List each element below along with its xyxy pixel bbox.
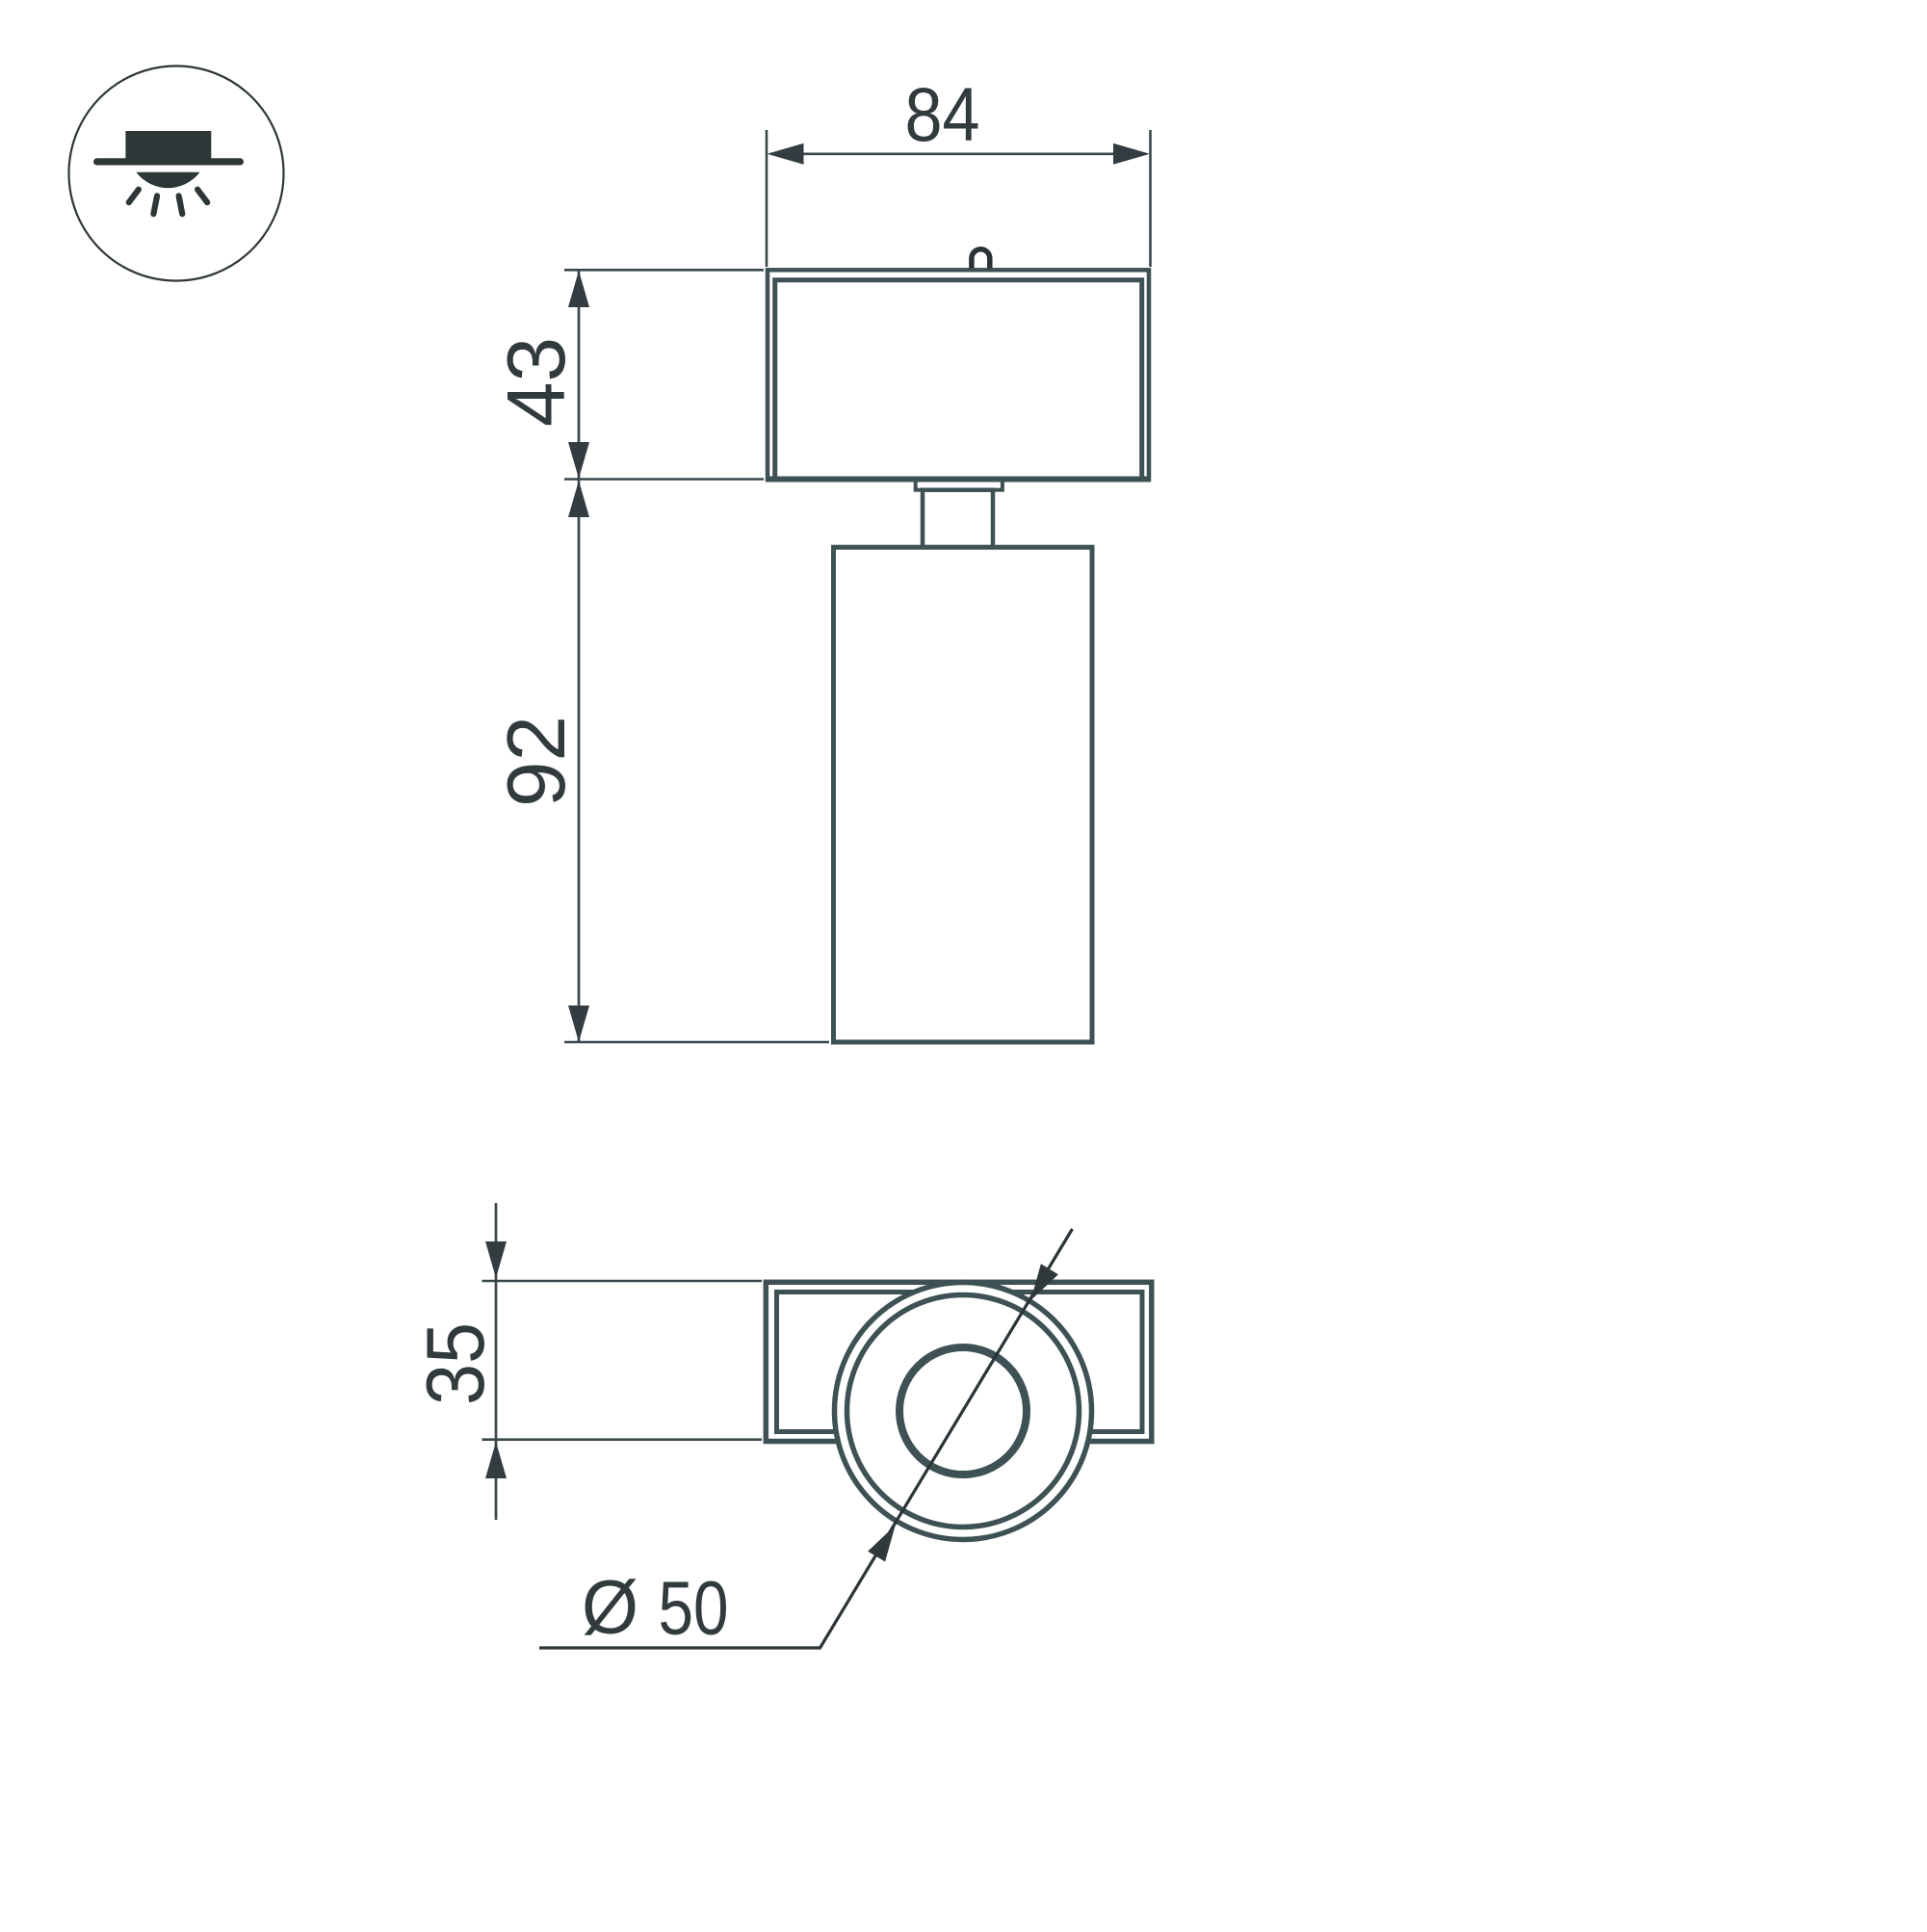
svg-text:35: 35 xyxy=(410,1322,502,1405)
svg-text:92: 92 xyxy=(491,716,583,807)
svg-text:84: 84 xyxy=(905,71,980,157)
svg-text:Ø: Ø xyxy=(582,1564,638,1650)
svg-text:43: 43 xyxy=(491,337,583,427)
svg-text:50: 50 xyxy=(659,1565,729,1651)
